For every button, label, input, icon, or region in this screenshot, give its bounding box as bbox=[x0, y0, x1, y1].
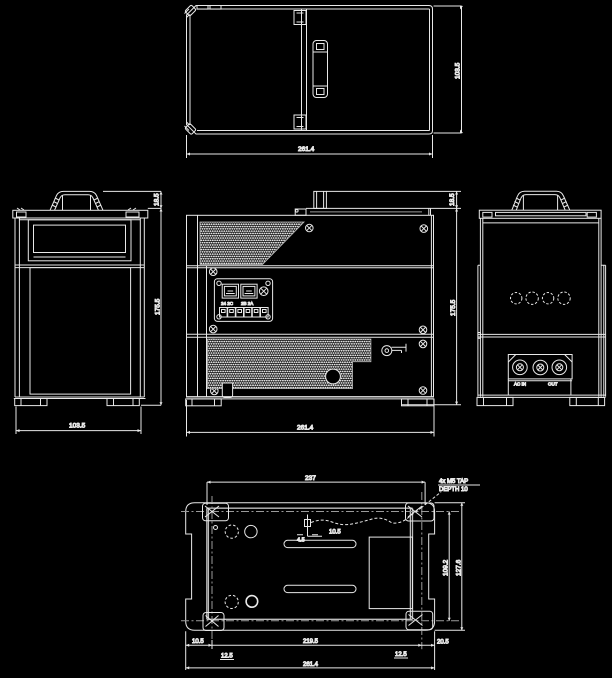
svg-text:18.5: 18.5 bbox=[449, 193, 456, 206]
svg-text:OUT: OUT bbox=[548, 382, 558, 387]
svg-text:24 2C: 24 2C bbox=[221, 301, 234, 306]
svg-text:DEPTH 10: DEPTH 10 bbox=[439, 487, 468, 493]
svg-text:109.2: 109.2 bbox=[443, 559, 450, 576]
svg-text:103.5: 103.5 bbox=[69, 423, 86, 430]
svg-text:127.6: 127.6 bbox=[455, 559, 462, 576]
svg-text:261.4: 261.4 bbox=[298, 146, 315, 153]
svg-text:261.4: 261.4 bbox=[303, 662, 319, 668]
svg-text:175.5: 175.5 bbox=[155, 298, 162, 315]
svg-text:261.4: 261.4 bbox=[297, 425, 314, 432]
svg-text:12.5: 12.5 bbox=[221, 654, 233, 660]
svg-text:18.5: 18.5 bbox=[154, 193, 161, 206]
svg-text:4x M5 TAP: 4x M5 TAP bbox=[439, 479, 468, 485]
svg-text:103.5: 103.5 bbox=[455, 62, 462, 79]
svg-text:175.5: 175.5 bbox=[450, 299, 457, 316]
svg-text:20.5: 20.5 bbox=[437, 640, 449, 646]
svg-text:237: 237 bbox=[305, 475, 316, 482]
svg-text:2B 2A: 2B 2A bbox=[241, 301, 253, 306]
svg-text:AC IN: AC IN bbox=[514, 382, 526, 387]
svg-text:4.5: 4.5 bbox=[297, 538, 305, 544]
svg-text:10.5: 10.5 bbox=[329, 530, 341, 536]
svg-text:10.5: 10.5 bbox=[192, 639, 204, 645]
svg-text:12.5: 12.5 bbox=[395, 652, 407, 658]
svg-text:219.5: 219.5 bbox=[303, 639, 319, 645]
